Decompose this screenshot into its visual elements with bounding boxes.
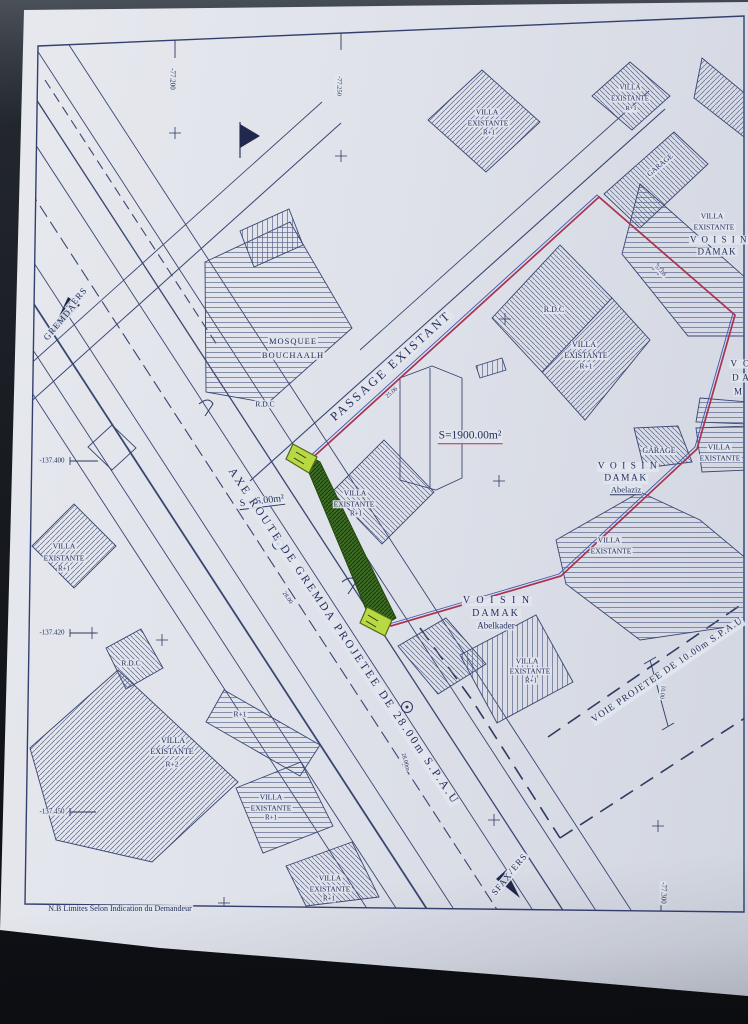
map-label-existante-19: EXISTANTE <box>563 352 608 360</box>
map-label-137-450-66: -137.450 <box>38 809 65 816</box>
map-label-r-d-c-40: R.D.C <box>254 400 275 408</box>
paper-sheet: VERSGREMDAMOSQUEEBOUCHAALHPASSAGE EXISTA… <box>0 0 748 1024</box>
map-label-villa-31: VILLA <box>597 536 622 544</box>
map-label-existante-55: EXISTANTE <box>467 119 510 127</box>
map-label-existante-37: EXISTANTE <box>43 554 86 562</box>
map-label-abelaziz-13: Abelaziz <box>610 485 642 495</box>
map-label-axe-route-de-gremda-projetee-de-28-00m-s-7: AXE ROUTE DE GREMDA PROJETEE DE 28.00m S… <box>225 466 461 809</box>
map-label-damak-15: DAMAK <box>471 609 521 619</box>
map-label-existante-52: EXISTANTE <box>509 667 552 675</box>
map-label-passage-existant-4: PASSAGE EXISTANT <box>327 308 454 424</box>
map-label-r-d-c-17: R.D.C <box>543 306 565 314</box>
map-label-r+1-59: R+1 <box>624 106 637 113</box>
map-label-v-o-28: V O <box>729 360 748 369</box>
map-label-r+1-41: R+1 <box>233 710 248 718</box>
map-label-villa-24: VILLA <box>700 212 725 220</box>
map-label-25-06-71: 25.06 <box>384 386 400 401</box>
map-label-abelkader-16: Abelkader <box>476 622 515 631</box>
map-label-v-o-i-s-i-n-14: V O I S I N <box>462 596 532 606</box>
map-label-voie-projetee-de-10-00m-s-p-a-u-8: VOIE PROJETEE DE 10.00m S.P.A.U <box>590 616 747 726</box>
map-label-r+1-38: R+1 <box>57 566 71 573</box>
map-label-villa-45: VILLA <box>259 793 284 801</box>
map-label-d-a-29: D A <box>731 374 748 383</box>
map-label-r+1-35: R+1 <box>349 511 363 518</box>
map-label-v-o-i-s-i-n-26: V O I S I N <box>689 236 748 245</box>
map-label-existante-23: EXISTANTE <box>699 454 742 462</box>
map-label-villa-22: VILLA <box>707 443 732 451</box>
map-label-28-00-69: 28.00 <box>280 590 294 606</box>
map-label-137-420-65: -137.420 <box>38 630 65 637</box>
map-label-r+1-20: R+1 <box>579 362 594 370</box>
map-label-s-1900-00m-5: S=1900.00m² <box>438 430 503 444</box>
map-label-existante-25: EXISTANTE <box>693 223 736 231</box>
map-label-10-00-70: 10.00 <box>658 684 666 700</box>
map-label-damak-12: DAMAK <box>603 474 648 484</box>
map-label-villa-36: VILLA <box>52 542 77 550</box>
map-label-existante-58: EXISTANTE <box>610 96 650 103</box>
map-label-villa-54: VILLA <box>475 108 500 116</box>
map-label-137-400-64: -137.400 <box>38 458 65 465</box>
map-label-gremda-1: GREMDA <box>41 301 78 343</box>
map-label-mosquee-2: MOSQUEE <box>268 337 318 346</box>
map-label-77-250-62: -77.250 <box>335 75 342 97</box>
map-label-villa-48: VILLA <box>318 874 343 882</box>
map-label-villa-18: VILLA <box>571 341 597 349</box>
map-label-57-08-72: 57.08 <box>653 263 668 278</box>
map-label-r+1-47: R+1 <box>264 815 278 822</box>
map-label-v-o-i-s-i-n-11: V O I S I N <box>597 462 659 472</box>
map-label-existante-46: EXISTANTE <box>250 804 293 812</box>
map-label-r-d-c-39: R.D.C <box>120 659 141 667</box>
map-label-existante-43: EXISTANTE <box>149 748 194 756</box>
map-label-existante-32: EXISTANTE <box>590 547 633 555</box>
map-label-villa-57: VILLA <box>619 85 642 92</box>
map-label-garage-60: GARAGE <box>645 151 675 178</box>
map-label-28-00m-68: 28.00m <box>399 751 410 772</box>
plan-text-labels: VERSGREMDAMOSQUEEBOUCHAALHPASSAGE EXISTA… <box>0 0 748 1024</box>
map-label-77-200-61: -77.200 <box>169 67 176 91</box>
map-label-villa-33: VILLA <box>343 489 368 497</box>
map-label-n-b-limites-selon-indication-du-demandeu-67: N.B Limites Selon Indication du Demandeu… <box>47 905 193 913</box>
map-label-existante-34: EXISTANTE <box>333 500 376 508</box>
map-label-r+1-50: R+1 <box>322 896 336 903</box>
map-label-villa-42: VILLA <box>160 737 186 745</box>
photographed-site-plan: { "scene": { "background_top": "#4b5158"… <box>0 0 748 1024</box>
map-label-damak-27: DAMAK <box>696 248 737 257</box>
map-label-r+1-53: R+1 <box>524 678 538 685</box>
map-label-garage-21: GARAGE <box>641 447 676 455</box>
map-label-bouchaalh-3: BOUCHAALH <box>261 351 325 360</box>
map-label-villa-51: VILLA <box>515 657 540 665</box>
map-label-77-300-63: -77.300 <box>660 881 667 905</box>
map-label-m-30: M <box>733 388 743 397</box>
map-label-r+2-44: R+2 <box>165 760 180 768</box>
map-label-sfax-10: SFAX <box>489 870 514 897</box>
map-label-existante-49: EXISTANTE <box>309 885 352 893</box>
map-label-r+1-56: R+1 <box>482 130 496 137</box>
